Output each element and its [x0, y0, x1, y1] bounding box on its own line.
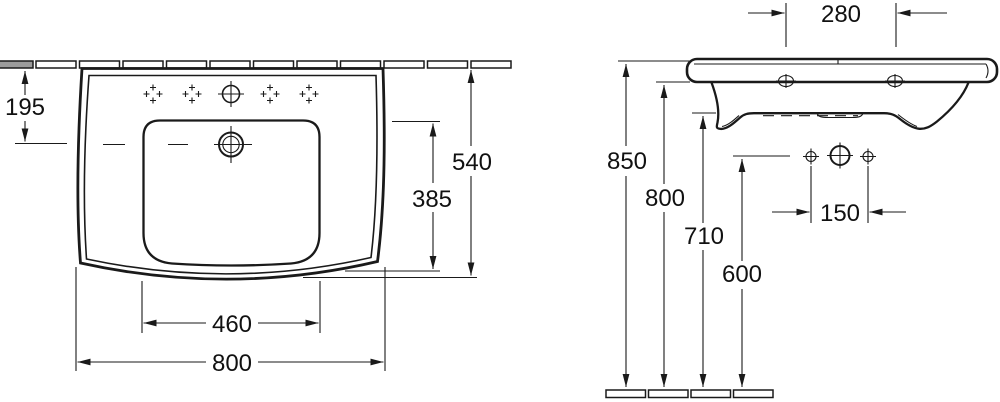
dim-460-label: 460 [212, 311, 252, 338]
tap-hole-target-icon [144, 85, 163, 104]
dim-195-label: 195 [5, 94, 45, 121]
rim-slab [687, 59, 997, 82]
side-view: 280 850 800 710 600 [606, 1, 997, 398]
dim-710: 710 [684, 113, 724, 387]
tap-hole-target-icon [261, 85, 280, 104]
basin-profile [712, 83, 969, 129]
bolt-hole-icon [860, 149, 876, 165]
dim-710-label: 710 [684, 223, 724, 250]
tap-hole-target-icon [300, 85, 319, 104]
wall-tile-shaded [0, 61, 33, 68]
tap-hole-markers [144, 81, 319, 107]
front-view: 195 540 385 460 [0, 61, 511, 377]
overflow-hole-icon [214, 126, 252, 163]
dim-540: 540 [303, 70, 492, 278]
dim-385: 385 [345, 122, 452, 272]
dim-800-width-label: 800 [212, 350, 252, 377]
dim-850: 850 [607, 61, 690, 387]
dim-385-label: 385 [412, 186, 452, 213]
dim-150: 150 [772, 166, 906, 227]
dim-460: 460 [142, 281, 320, 338]
dim-280: 280 [748, 1, 947, 47]
bolt-hole-icon [803, 149, 819, 165]
technical-drawing: 195 540 385 460 [0, 0, 1000, 402]
dim-800-height-label: 800 [645, 185, 685, 212]
dim-540-label: 540 [452, 149, 492, 176]
dim-850-label: 850 [607, 148, 647, 175]
dim-600: 600 [722, 156, 790, 387]
wall-tiles [0, 61, 511, 68]
tap-hole-circle-icon [218, 81, 244, 107]
dim-280-label: 280 [821, 1, 861, 28]
dim-150-label: 150 [820, 200, 860, 227]
drawing-canvas: 195 540 385 460 [0, 0, 1000, 402]
floor-tiles [606, 390, 773, 398]
tap-hole-target-icon [183, 85, 202, 104]
drain-hole-icon [827, 143, 853, 169]
dim-600-label: 600 [722, 261, 762, 288]
dim-195: 195 [5, 71, 67, 144]
